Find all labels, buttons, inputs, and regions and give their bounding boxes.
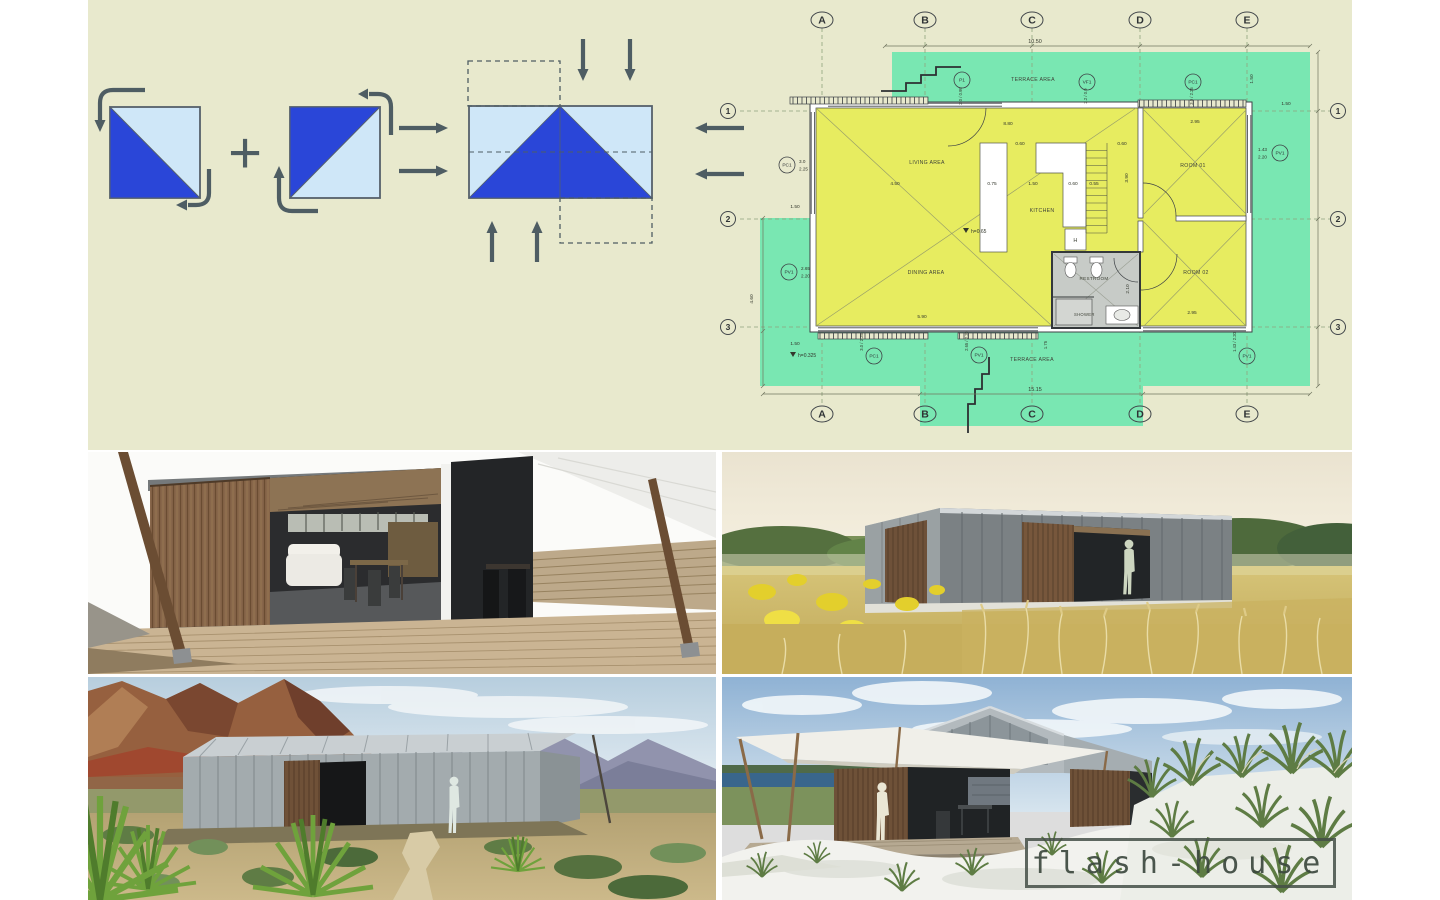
module-square-2 [290, 107, 380, 198]
grid-letter: B [921, 409, 929, 421]
kitchen-label: KITCHEN [1030, 208, 1055, 214]
plus-operator: + [228, 121, 262, 186]
combine-arrows [399, 123, 448, 177]
grid-number: 3 [726, 322, 731, 332]
shower-label: SHOWER [1074, 312, 1095, 317]
tag-dim: 2.20 [1258, 155, 1267, 160]
tag-dim: 2.0 / 0.95 [958, 87, 963, 105]
tag-dim: 1.75 [1043, 340, 1048, 349]
dim: 0.75 [987, 181, 997, 187]
heater-label: H [1073, 238, 1077, 244]
tag-dim: 1.43 [1258, 147, 1267, 152]
restroom-label: RESTROOM [1080, 276, 1109, 281]
tag-dim: 3.0 [799, 159, 806, 164]
terrace-bottom-label: TERRACE AREA [1010, 357, 1054, 363]
level-main: h=0.65 [971, 229, 987, 235]
terrace-top-label: TERRACE AREA [1011, 77, 1055, 83]
transform-diagram: + [95, 39, 745, 262]
tag-dim: 1.43 / 2.20 [1232, 331, 1237, 351]
grid-letter: C [1028, 409, 1036, 421]
dim: 4.60 [749, 294, 755, 304]
tag-pc1: PC1 [782, 163, 792, 169]
render-desert [88, 677, 716, 900]
module-square-1 [110, 107, 200, 198]
tag-dim: 2.2 / 0.9 [1083, 88, 1088, 104]
opening [1074, 526, 1150, 602]
grid-letter: C [1028, 15, 1036, 27]
dim: 1.50 [1249, 74, 1255, 84]
dim: 2.95 [1190, 119, 1200, 125]
dim: 1.50 [790, 204, 800, 210]
tag-dim: 2.25 [799, 167, 808, 172]
room1-label: ROOM 01 [1180, 163, 1205, 169]
grid-letter: E [1243, 15, 1250, 27]
dim: 0.55 [1089, 181, 1099, 187]
floor-plan: A B C D E A B C D E [721, 12, 1346, 433]
tag-dim: 2.20 [801, 274, 810, 279]
grid-letter: E [1243, 409, 1250, 421]
dim: 1.50 [1028, 181, 1038, 187]
project-logo: flash-house [1025, 838, 1336, 888]
dim: 1.50 [790, 341, 800, 347]
grid-number: 2 [726, 214, 731, 224]
dim: 2.10 [1125, 284, 1131, 294]
dim: 8.80 [1003, 121, 1013, 127]
grid-letter: B [921, 15, 929, 27]
tag-dim: 3.0 / 2.25 [859, 333, 864, 351]
tag-pc1: PC1 [869, 354, 879, 360]
grid-letter: D [1136, 409, 1144, 421]
tag-pv1: PV1 [1242, 354, 1251, 360]
right-dark-bay [451, 456, 533, 626]
house [865, 508, 1232, 613]
grid-letter: D [1136, 15, 1144, 27]
render-field [722, 452, 1352, 674]
grid-letter: A [818, 15, 826, 27]
tag-p1: P1 [959, 78, 965, 84]
grid-letter: A [818, 409, 826, 421]
interior-opening [270, 468, 441, 628]
top-panel: + [88, 0, 1352, 450]
dim: 0.60 [1117, 141, 1127, 147]
presentation-board: + [0, 0, 1440, 900]
grid-number: 1 [726, 106, 731, 116]
render-beach: flash-house [722, 677, 1352, 900]
result-module [468, 61, 652, 243]
house [154, 733, 610, 845]
living-label: LIVING AREA [909, 160, 945, 166]
tag-vf1: VF1 [1083, 80, 1092, 86]
level-terrace: h=0.325 [798, 353, 816, 359]
tag-pc1: PC1 [1188, 80, 1198, 86]
tag-pv1: PV1 [974, 353, 983, 359]
folding-deck [533, 540, 716, 610]
tag-dim: 3.0 / 2.25 [1189, 87, 1194, 105]
dim: 0.60 [1068, 181, 1078, 187]
render-porch-interior [88, 452, 716, 674]
dim: 4.50 [890, 181, 900, 187]
logo-text: flash-house [1032, 846, 1330, 881]
dim: 3.90 [1124, 173, 1130, 183]
dim: 2.95 [1187, 310, 1197, 316]
grid-number: 3 [1336, 322, 1341, 332]
grid-number: 2 [1336, 214, 1341, 224]
tag-dim: 2.65 / 2.20 [964, 330, 969, 350]
dim: 5.90 [917, 314, 927, 320]
grid-number: 1 [1336, 106, 1341, 116]
dim: 0.60 [1015, 141, 1025, 147]
dining-table [350, 560, 408, 565]
tag-pv1: PV1 [784, 270, 793, 276]
dining-label: DINING AREA [908, 270, 945, 276]
dim-bottom: 15.15 [1028, 387, 1042, 393]
white-post [441, 464, 451, 626]
dim-top: 10.50 [1028, 39, 1042, 45]
tag-pv1: PV1 [1275, 151, 1284, 157]
tag-dim: 2.65 [801, 266, 810, 271]
dim: 1.50 [1281, 101, 1291, 107]
room2-label: ROOM 02 [1183, 270, 1208, 276]
